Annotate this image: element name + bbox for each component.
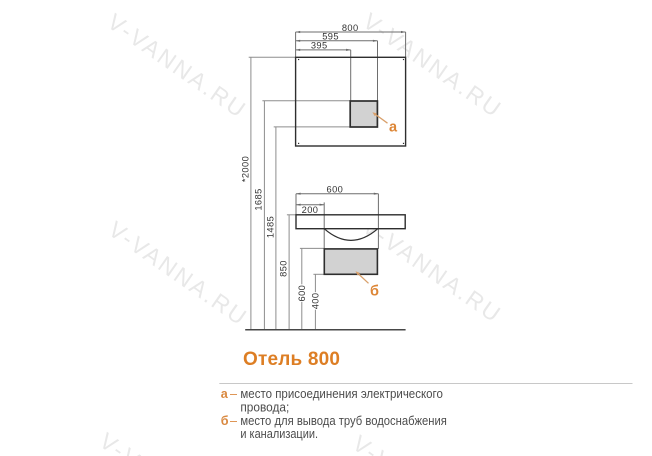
svg-text:и канализации.: и канализации. (240, 427, 318, 441)
svg-text:Отель 800: Отель 800 (243, 349, 340, 370)
svg-text:–: – (230, 387, 237, 401)
svg-text:1485: 1485 (266, 216, 276, 238)
svg-text:800: 800 (342, 23, 359, 33)
svg-text:395: 395 (311, 41, 328, 51)
svg-text:200: 200 (302, 205, 319, 215)
svg-text:место для вывода труб водоснаб: место для вывода труб водоснабжения (240, 414, 447, 428)
svg-text:400: 400 (311, 293, 321, 310)
svg-text:1685: 1685 (253, 188, 263, 210)
svg-text:б: б (221, 414, 229, 428)
svg-text:*2000: *2000 (241, 156, 251, 182)
svg-text:600: 600 (297, 285, 307, 302)
svg-text:провода;: провода; (240, 400, 289, 414)
svg-text:а: а (221, 387, 229, 401)
svg-text:–: – (230, 414, 237, 428)
svg-text:б: б (370, 283, 379, 299)
svg-text:место присоединения электричес: место присоединения электрического (240, 387, 443, 401)
svg-text:600: 600 (327, 185, 344, 195)
svg-text:850: 850 (278, 260, 288, 277)
svg-text:а: а (389, 120, 398, 136)
